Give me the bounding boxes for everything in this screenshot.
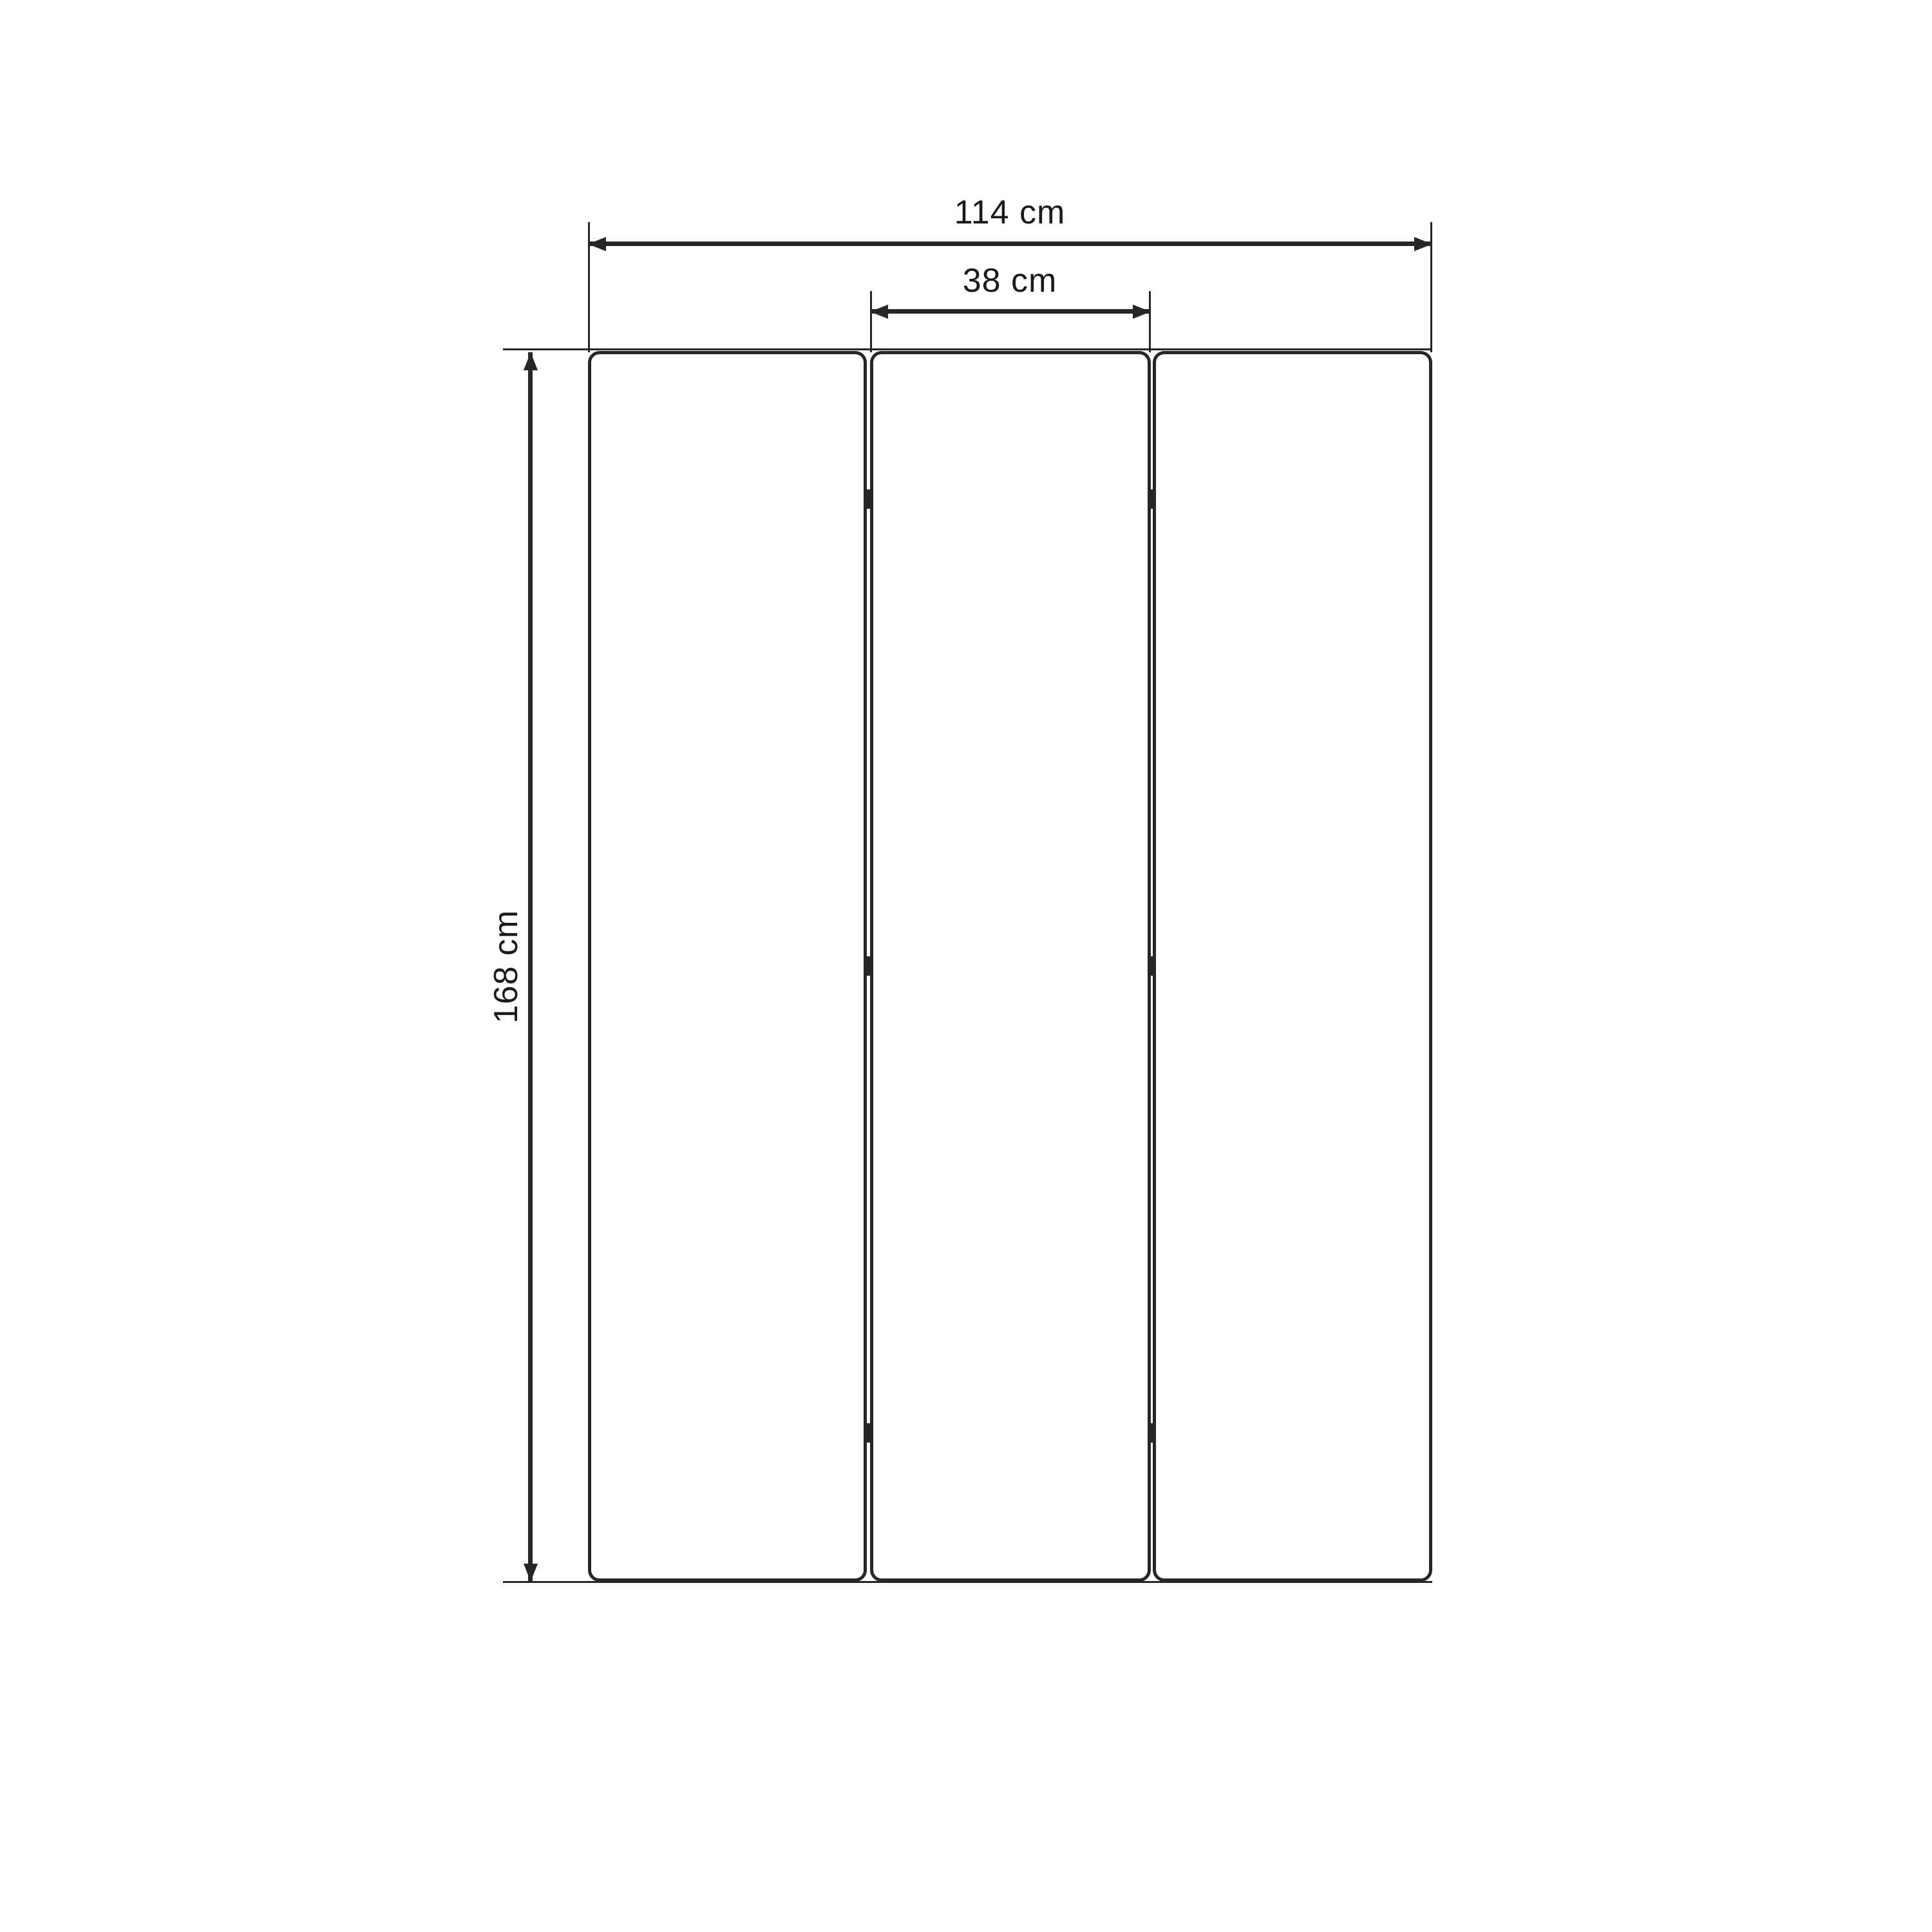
dimension-line-panel-width [870,309,1151,314]
dimension-label-height: 168 cm [486,838,527,1095]
arrowhead-right-icon [1414,237,1432,251]
extension-line-total-width-right [1430,222,1432,352]
arrowhead-left-icon [588,237,606,251]
hinge-mark [865,1423,873,1443]
dimension-label-total-width: 114 cm [881,192,1139,233]
dimension-label-panel-width: 38 cm [881,260,1139,301]
extension-line-panel-width-left [870,291,872,352]
extension-line-panel-width-right [1149,291,1151,352]
arrowhead-up-icon [524,352,538,370]
hinge-mark [1148,956,1156,976]
hinge-mark [1148,489,1156,509]
arrowhead-left-icon [870,305,888,319]
panel-left [588,351,867,1582]
dimension-line-total-width [588,241,1432,246]
extension-line-height-top [503,348,1432,350]
dimension-line-height [528,352,533,1582]
hinge-mark [865,489,873,509]
panel-middle [870,351,1151,1582]
diagram-canvas: 114 cm 38 cm 168 cm [0,0,1932,1932]
arrowhead-right-icon [1133,305,1151,319]
hinge-mark [865,956,873,976]
extension-line-total-width-left [588,222,590,352]
arrowhead-down-icon [524,1564,538,1582]
hinge-mark [1148,1423,1156,1443]
panel-right [1153,351,1432,1582]
